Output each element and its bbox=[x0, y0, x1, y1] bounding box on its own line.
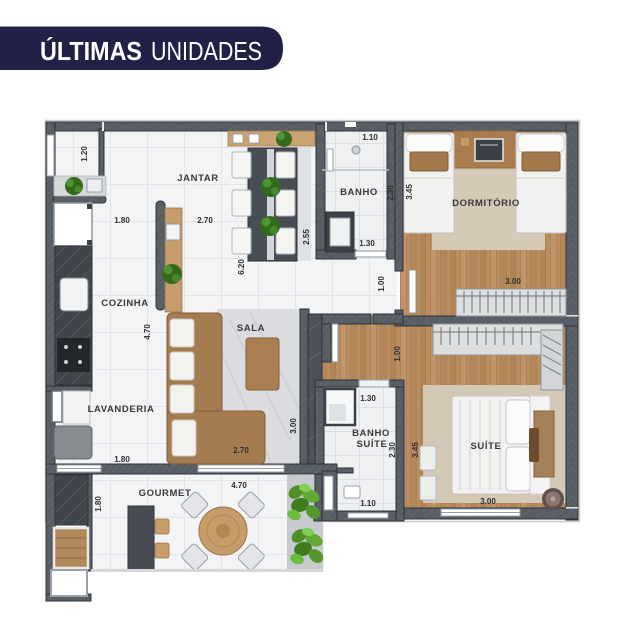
svg-text:1.80: 1.80 bbox=[94, 496, 103, 512]
svg-text:1.80: 1.80 bbox=[114, 455, 130, 464]
svg-text:1.00: 1.00 bbox=[393, 346, 402, 362]
svg-text:1.80: 1.80 bbox=[114, 216, 130, 225]
svg-text:3.45: 3.45 bbox=[411, 442, 420, 458]
svg-text:ÚLTIMAS: ÚLTIMAS bbox=[40, 36, 142, 66]
svg-text:BANHO: BANHO bbox=[340, 187, 378, 198]
svg-text:LAVANDERIA: LAVANDERIA bbox=[88, 404, 155, 415]
svg-text:1.10: 1.10 bbox=[362, 133, 378, 142]
svg-text:2.70: 2.70 bbox=[233, 446, 249, 455]
svg-text:1.30: 1.30 bbox=[360, 394, 376, 403]
svg-text:UNIDADES: UNIDADES bbox=[151, 36, 262, 66]
svg-text:SUÍTE: SUÍTE bbox=[357, 439, 388, 450]
svg-text:SALA: SALA bbox=[237, 323, 265, 334]
svg-text:1.30: 1.30 bbox=[359, 239, 375, 248]
svg-text:3.00: 3.00 bbox=[480, 497, 496, 506]
svg-text:3.00: 3.00 bbox=[505, 277, 521, 286]
svg-text:2.30: 2.30 bbox=[386, 185, 395, 201]
svg-text:4.70: 4.70 bbox=[143, 324, 152, 340]
svg-text:4.70: 4.70 bbox=[231, 481, 247, 490]
svg-text:2.55: 2.55 bbox=[302, 229, 311, 245]
svg-text:JANTAR: JANTAR bbox=[177, 173, 218, 184]
svg-text:3.00: 3.00 bbox=[289, 418, 298, 434]
svg-text:GOURMET: GOURMET bbox=[139, 488, 192, 499]
svg-text:3.45: 3.45 bbox=[405, 184, 414, 200]
svg-text:COZINHA: COZINHA bbox=[101, 298, 148, 309]
svg-text:SUÍTE: SUÍTE bbox=[471, 441, 502, 452]
svg-text:DORMITÓRIO: DORMITÓRIO bbox=[452, 197, 520, 209]
svg-text:2.30: 2.30 bbox=[388, 442, 397, 458]
svg-text:1.00: 1.00 bbox=[377, 276, 386, 292]
svg-text:1.20: 1.20 bbox=[80, 146, 89, 162]
svg-text:1.10: 1.10 bbox=[360, 499, 376, 508]
svg-text:2.70: 2.70 bbox=[197, 216, 213, 225]
svg-text:BANHO: BANHO bbox=[352, 428, 390, 439]
svg-text:6.20: 6.20 bbox=[237, 259, 246, 275]
